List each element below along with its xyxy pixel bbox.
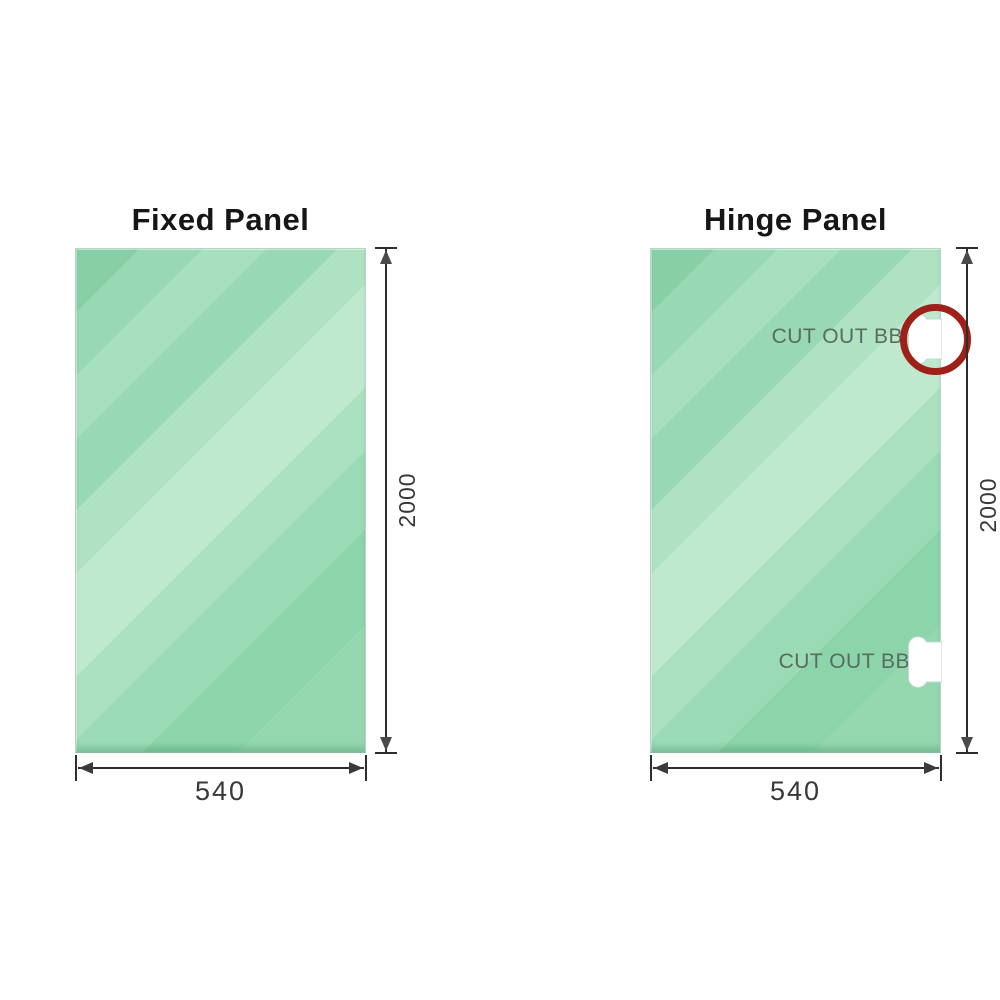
fixed-width-dim-label: 540: [75, 776, 366, 807]
hinge-width-dim-arrow-left-icon: [654, 762, 668, 774]
cutout-top-label: CUT OUT BB: [750, 325, 903, 349]
fixed-height-dim-line: [385, 248, 387, 753]
fixed-width-dim-arrow-right-icon: [349, 762, 363, 774]
fixed-panel-title: Fixed Panel: [75, 202, 366, 238]
hinge-panel-title: Hinge Panel: [650, 202, 941, 238]
fixed-height-dim-arrow-up-icon: [380, 250, 392, 264]
cutout-bottom-label: CUT OUT BB: [755, 650, 910, 674]
panel-diagram-canvas: Fixed Panel 2000 540 Hinge Panel CUT OUT…: [0, 0, 1000, 1000]
hinge-width-dim-line: [653, 767, 939, 769]
hinge-height-dim-line: [966, 248, 968, 753]
hinge-height-dim-label: 2000: [976, 460, 1000, 550]
fixed-height-dim-arrow-down-icon: [380, 737, 392, 751]
hinge-panel-glass: [650, 248, 941, 753]
hinge-width-dim-label: 540: [650, 776, 941, 807]
fixed-width-dim-arrow-left-icon: [79, 762, 93, 774]
hinge-width-dim-arrow-right-icon: [924, 762, 938, 774]
hinge-height-dim-arrow-up-icon: [961, 250, 973, 264]
fixed-panel-glass: [75, 248, 366, 753]
hinge-height-dim-arrow-down-icon: [961, 737, 973, 751]
fixed-width-dim-line: [78, 767, 364, 769]
cutout-highlight-circle-icon: [900, 304, 971, 375]
hinge-cutout-bottom-shape: [906, 636, 942, 688]
fixed-height-dim-label: 2000: [395, 455, 419, 545]
